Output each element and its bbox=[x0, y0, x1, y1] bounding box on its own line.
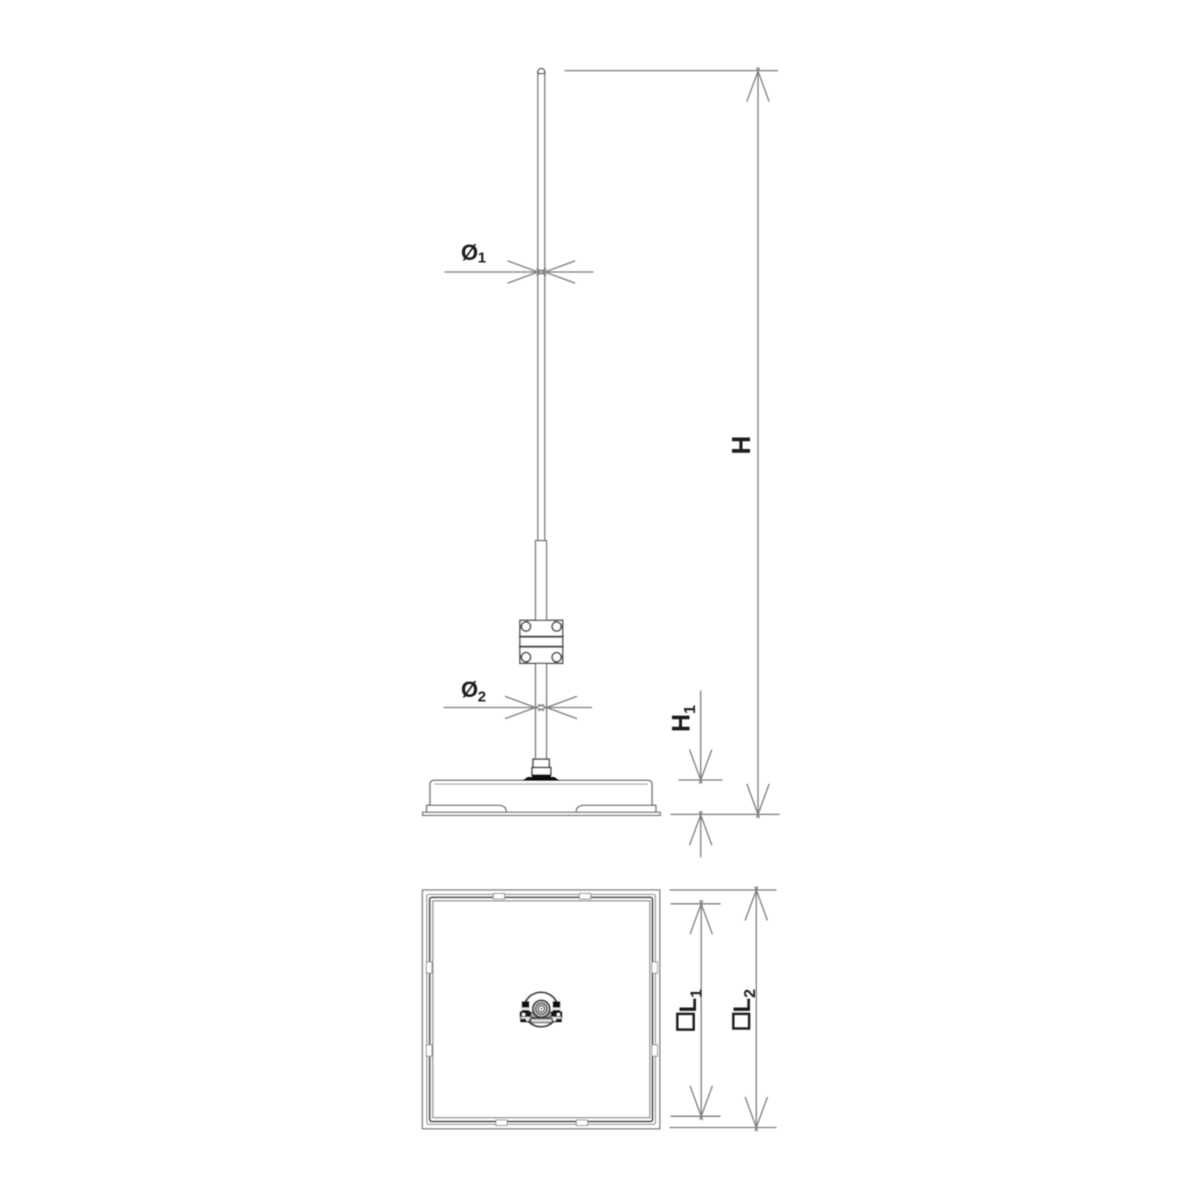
svg-text:2: 2 bbox=[478, 688, 486, 705]
svg-text:Ø: Ø bbox=[461, 677, 478, 702]
svg-text:L1: L1 bbox=[675, 989, 706, 1013]
svg-text:H1: H1 bbox=[668, 705, 700, 732]
svg-text:1: 1 bbox=[478, 250, 486, 267]
svg-text:Ø: Ø bbox=[461, 240, 478, 265]
svg-text:L2: L2 bbox=[729, 989, 759, 1013]
svg-text:H: H bbox=[726, 436, 756, 455]
